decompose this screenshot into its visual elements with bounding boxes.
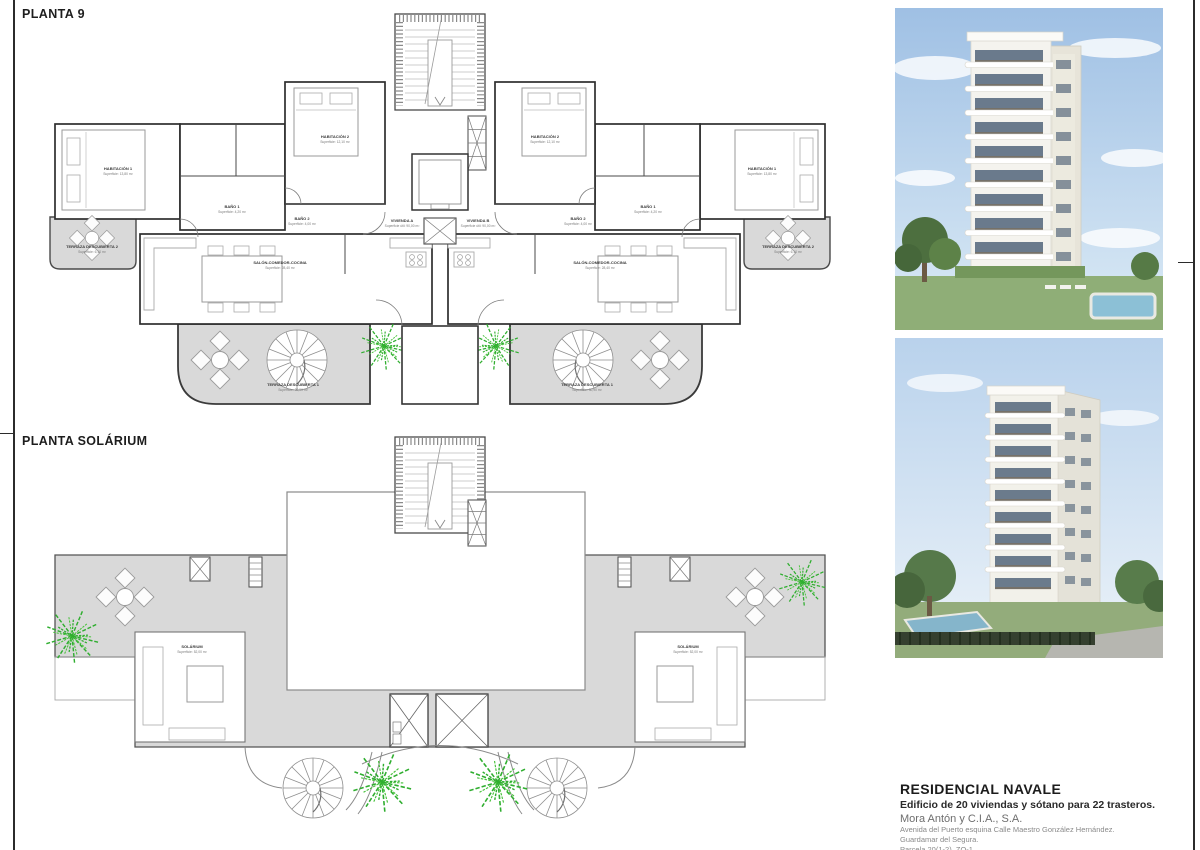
svg-text:SALÓN-COMEDOR-COCINA: SALÓN-COMEDOR-COCINA [573,260,626,265]
drawing-sheet: PLANTA 9 PLANTA SOLÁRIUM [0,0,1200,850]
building-render-2 [895,338,1163,658]
svg-text:BAÑO 2: BAÑO 2 [570,216,586,221]
svg-text:Superficie: 6,10 m²: Superficie: 6,10 m² [774,250,803,254]
project-address2: Guardamar del Segura. [900,835,1190,845]
building-render-1 [895,8,1163,330]
svg-text:HABITACIÓN 2: HABITACIÓN 2 [531,134,560,139]
svg-text:Superficie: 4,00 m²: Superficie: 4,00 m² [564,222,593,226]
plan9-right-half [448,82,830,404]
svg-text:TERRAZA DESCUBIERTA 2: TERRAZA DESCUBIERTA 2 [66,244,119,249]
svg-text:Superficie: 12,10 m²: Superficie: 12,10 m² [320,140,350,144]
svg-text:SOLÁRIUM: SOLÁRIUM [181,644,203,649]
svg-text:Superficie: 13,80 m²: Superficie: 13,80 m² [747,172,777,176]
project-address3: Parcela 20(1-2). ZO-1 [900,845,1190,850]
svg-text:Superficie: 52,00 m²: Superficie: 52,00 m² [177,650,207,654]
svg-text:BAÑO 2: BAÑO 2 [294,216,310,221]
svg-text:VIVIENDA A: VIVIENDA A [391,218,414,223]
svg-text:TERRAZA DESCUBIERTA 1: TERRAZA DESCUBIERTA 1 [267,382,320,387]
svg-text:SOLÁRIUM: SOLÁRIUM [677,644,699,649]
svg-text:BAÑO 1: BAÑO 1 [224,204,240,209]
svg-text:HABITACIÓN 1: HABITACIÓN 1 [748,166,777,171]
tower [965,32,1081,290]
project-name: RESIDENCIAL NAVALE [900,781,1190,797]
right-frame-line [1193,0,1195,850]
project-address1: Avenida del Puerto esquina Calle Maestro… [900,825,1190,835]
project-subtitle: Edificio de 20 viviendas y sótano para 2… [900,799,1190,811]
svg-text:TERRAZA DESCUBIERTA 2: TERRAZA DESCUBIERTA 2 [762,244,815,249]
svg-text:HABITACIÓN 2: HABITACIÓN 2 [321,134,350,139]
fence [895,632,1095,645]
solarium-drawing: SOLÁRIUM Superficie: 52,00 m² SOLÁRIUM S… [40,432,840,832]
stove-left [406,252,426,267]
svg-text:Superficie: 4,00 m²: Superficie: 4,00 m² [288,222,317,226]
hedge [955,266,1085,278]
svg-text:Superficie: 13,80 m²: Superficie: 13,80 m² [103,172,133,176]
svg-text:SALÓN-COMEDOR-COCINA: SALÓN-COMEDOR-COCINA [253,260,306,265]
left-frame-line [13,0,15,850]
svg-text:Superficie: 30,90 m²: Superficie: 30,90 m² [278,388,308,392]
svg-text:Superficie: 28,40 m²: Superficie: 28,40 m² [585,266,615,270]
deck-step-left [55,657,135,700]
svg-text:TERRAZA DESCUBIERTA 1: TERRAZA DESCUBIERTA 1 [561,382,614,387]
project-company: Mora Antón y C.I.A., S.A. [900,813,1190,825]
plan9-drawing: HABITACIÓN 1 Superficie: 13,80 m² HABITA… [40,12,840,412]
left-fold-tick [0,433,13,434]
svg-text:Superficie: 12,10 m²: Superficie: 12,10 m² [530,140,560,144]
svg-text:Superficie: 4,20 m²: Superficie: 4,20 m² [634,210,663,214]
svg-text:Superficie: 6,10 m²: Superficie: 6,10 m² [78,250,107,254]
right-fold-tick [1178,262,1193,263]
plan9-left-half [50,82,432,404]
svg-text:Superficie: 28,40 m²: Superficie: 28,40 m² [265,266,295,270]
svg-text:Superficie: 4,20 m²: Superficie: 4,20 m² [218,210,247,214]
deck-step-right [745,657,825,700]
svg-text:Superficie: 30,90 m²: Superficie: 30,90 m² [572,388,602,392]
side-balconies [1053,54,1075,284]
svg-text:HABITACIÓN 1: HABITACIÓN 1 [104,166,133,171]
svg-text:Superficie útil: 90,00 m²: Superficie útil: 90,00 m² [385,224,421,228]
svg-text:Superficie: 52,00 m²: Superficie: 52,00 m² [673,650,703,654]
svg-text:BAÑO 1: BAÑO 1 [640,204,656,209]
svg-text:VIVIENDA B: VIVIENDA B [467,218,490,223]
bath-block-left [180,124,285,230]
svg-text:Superficie útil: 90,00 m²: Superficie útil: 90,00 m² [461,224,497,228]
title-block: RESIDENCIAL NAVALE Edificio de 20 vivien… [900,781,1190,850]
tower [985,386,1100,610]
elevator-shafts [390,694,488,747]
